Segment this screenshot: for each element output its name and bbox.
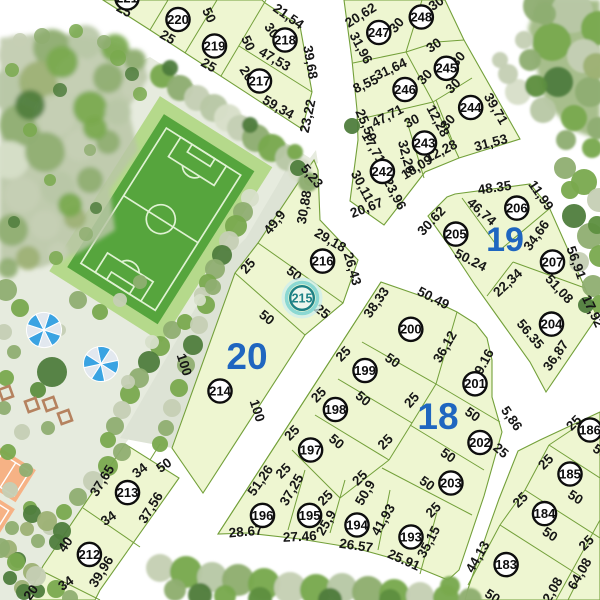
svg-text:242: 242 [372, 164, 394, 179]
svg-text:247: 247 [368, 25, 390, 40]
svg-text:193: 193 [400, 529, 422, 544]
svg-text:217: 217 [249, 73, 271, 88]
svg-text:201: 201 [464, 376, 486, 391]
svg-text:184: 184 [534, 506, 556, 521]
svg-text:27.46: 27.46 [282, 528, 317, 545]
svg-text:194: 194 [346, 517, 368, 532]
svg-text:218: 218 [274, 32, 296, 47]
svg-text:195: 195 [299, 508, 321, 523]
svg-text:248: 248 [410, 9, 432, 24]
svg-text:205: 205 [445, 227, 467, 242]
svg-text:198: 198 [325, 402, 347, 417]
svg-text:215: 215 [292, 292, 313, 306]
svg-text:220: 220 [167, 12, 189, 27]
svg-text:199: 199 [354, 363, 376, 378]
svg-text:219: 219 [204, 38, 226, 53]
svg-text:196: 196 [252, 508, 274, 523]
svg-text:213: 213 [117, 485, 139, 500]
svg-text:206: 206 [506, 201, 528, 216]
svg-text:246: 246 [394, 82, 416, 97]
svg-text:19: 19 [486, 221, 524, 259]
svg-text:185: 185 [559, 466, 581, 481]
svg-text:20: 20 [226, 336, 267, 377]
svg-text:212: 212 [79, 547, 101, 562]
svg-text:216: 216 [312, 254, 334, 269]
svg-text:186: 186 [579, 422, 600, 437]
svg-text:243: 243 [414, 135, 436, 150]
svg-text:18: 18 [417, 396, 458, 437]
svg-text:244: 244 [460, 100, 482, 115]
svg-text:214: 214 [209, 383, 231, 398]
svg-text:183: 183 [495, 557, 517, 572]
svg-text:221: 221 [116, 0, 138, 5]
svg-text:203: 203 [440, 475, 462, 490]
svg-text:207: 207 [542, 254, 564, 269]
svg-text:202: 202 [469, 435, 491, 450]
svg-text:204: 204 [541, 317, 563, 332]
svg-text:200: 200 [400, 322, 422, 337]
svg-text:197: 197 [300, 442, 322, 457]
svg-text:245: 245 [435, 61, 457, 76]
